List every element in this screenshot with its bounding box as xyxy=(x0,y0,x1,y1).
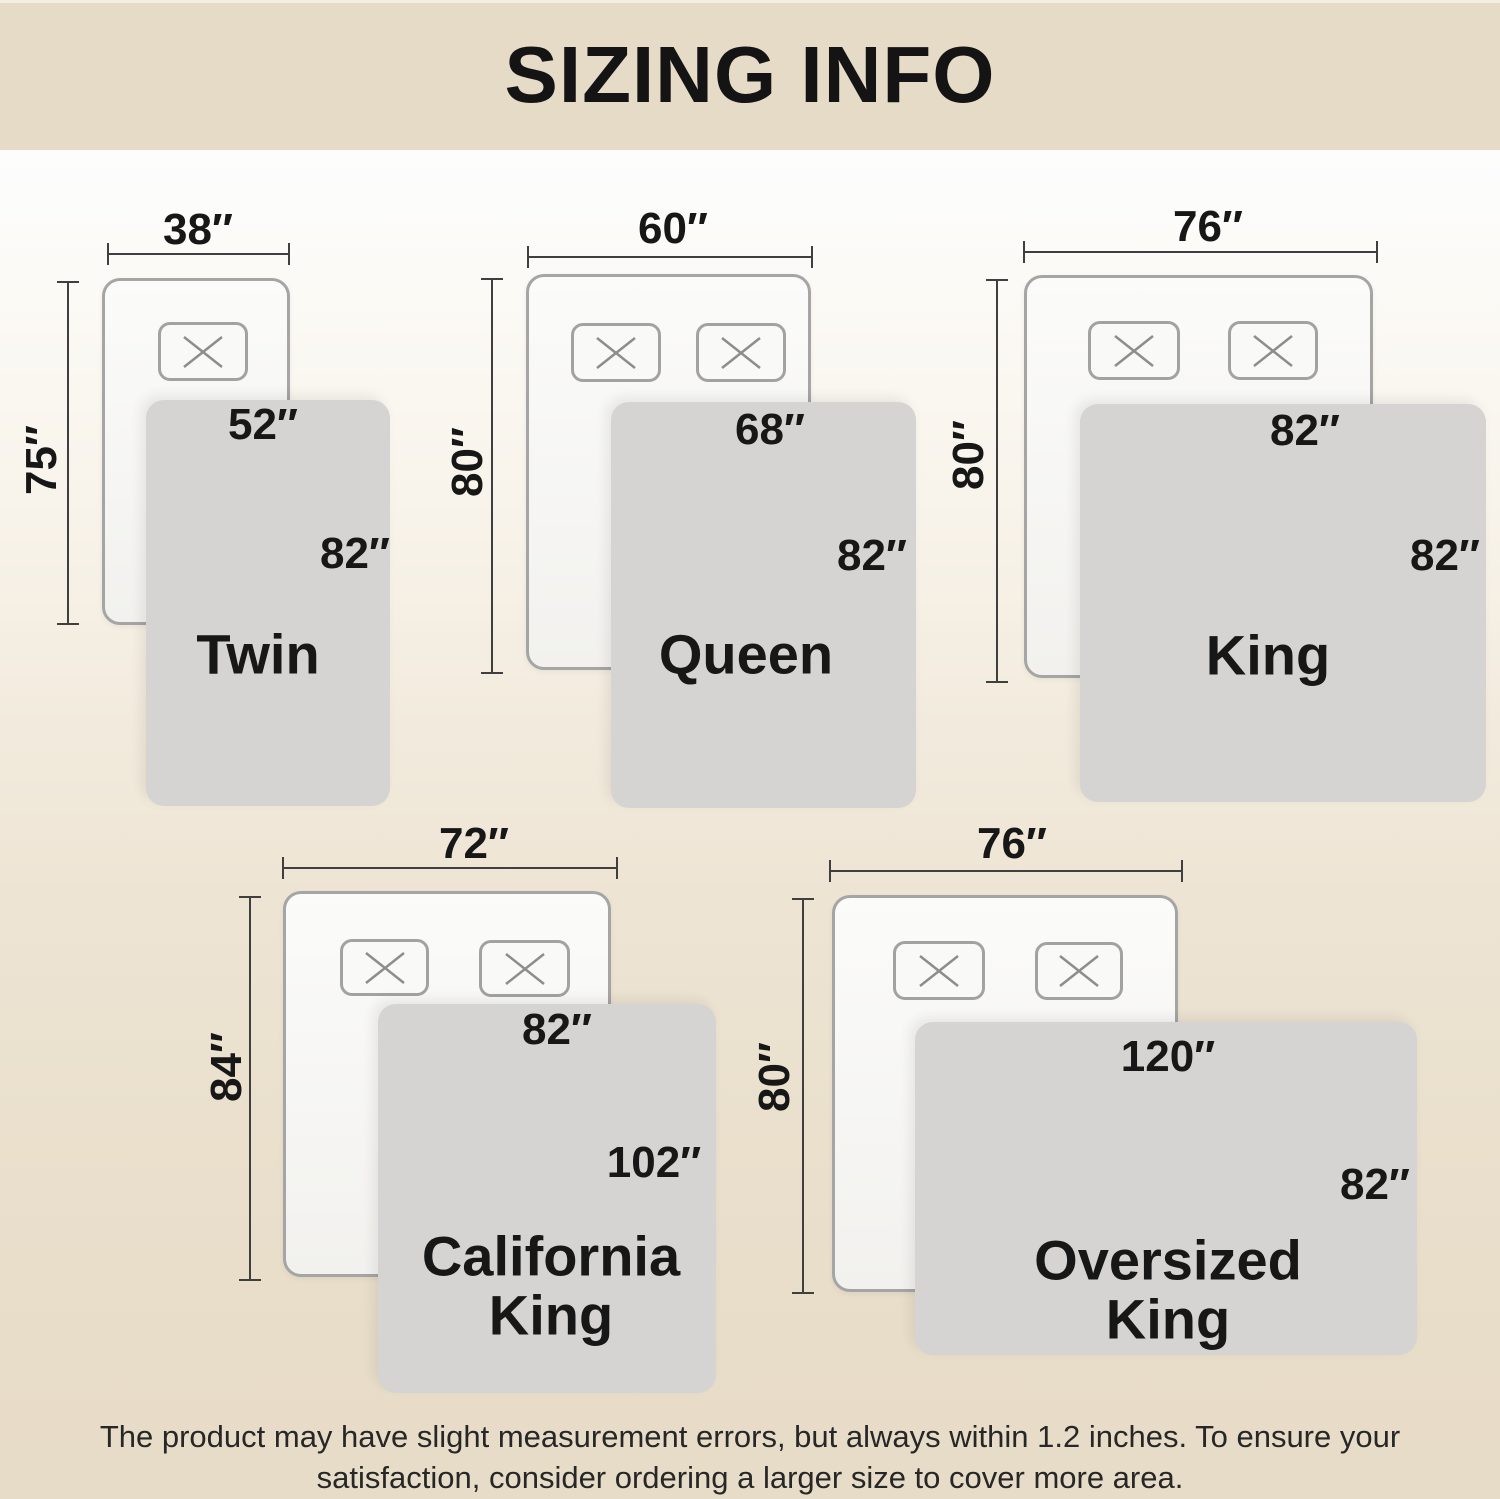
pillow-x-icon xyxy=(1054,952,1104,990)
twin-size-name: Twin xyxy=(196,624,319,683)
california-king-length-dimension-line xyxy=(239,896,261,1281)
oversized-king-pillow-right xyxy=(1035,942,1123,1000)
king-pillow-left xyxy=(1088,321,1180,380)
queen-blanket: 68″ 82″ Queen xyxy=(611,402,916,808)
queen-length-dimension-line xyxy=(481,278,503,674)
twin-length-dimension-line xyxy=(57,281,79,625)
twin-blanket-width-label: 52″ xyxy=(228,400,298,450)
california-king-blanket: 82″ 102″ California King xyxy=(378,1004,716,1393)
queen-mattress xyxy=(526,274,811,670)
king-width-dimension-line xyxy=(1023,241,1378,263)
pillow-x-icon xyxy=(914,952,964,990)
queen-blanket-length-label: 82″ xyxy=(837,531,907,581)
pillow-x-icon xyxy=(500,950,550,988)
queen-mattress-width-label: 60″ xyxy=(638,204,708,254)
california-king-mattress-length-label: 84″ xyxy=(202,1032,252,1102)
king-size-name: King xyxy=(1206,625,1330,684)
size-group-queen: 60″ 80″ 68″ 82″ Queen xyxy=(0,0,1500,1499)
page-title: SIZING INFO xyxy=(505,29,996,121)
sizing-info-graphic: SIZING INFO 38″ 75″ 52″ 82″ Twin 60″ 80″ xyxy=(0,0,1500,1499)
oversized-king-pillow-left xyxy=(893,941,985,1000)
oversized-king-width-dimension-line xyxy=(829,860,1183,882)
size-group-california-king: 72″ 84″ 82″ 102″ California King xyxy=(0,0,1500,1499)
king-blanket-length-label: 82″ xyxy=(1410,531,1480,581)
california-king-width-dimension-line xyxy=(282,857,618,879)
pillow-x-icon xyxy=(178,333,228,371)
oversized-king-blanket-length-label: 82″ xyxy=(1340,1160,1410,1210)
oversized-king-blanket-width-label: 120″ xyxy=(1121,1032,1216,1082)
california-king-pillow-left xyxy=(340,939,429,996)
disclaimer-line-2: satisfaction, consider ordering a larger… xyxy=(0,1457,1500,1498)
king-pillow-right xyxy=(1228,321,1318,380)
pillow-x-icon xyxy=(1248,332,1298,370)
queen-pillow-right xyxy=(696,323,786,382)
california-king-blanket-length-label: 102″ xyxy=(607,1138,702,1188)
twin-blanket-length-label: 82″ xyxy=(320,529,390,579)
king-mattress xyxy=(1024,275,1373,678)
oversized-king-length-dimension-line xyxy=(792,898,814,1294)
queen-width-dimension-line xyxy=(527,246,813,268)
pillow-x-icon xyxy=(716,334,766,372)
california-king-size-name: California King xyxy=(386,1227,716,1346)
disclaimer-line-1: The product may have slight measurement … xyxy=(0,1416,1500,1457)
queen-mattress-length-label: 80″ xyxy=(443,427,493,497)
queen-blanket-width-label: 68″ xyxy=(735,405,805,455)
size-group-twin: 38″ 75″ 52″ 82″ Twin xyxy=(0,0,1500,1499)
king-mattress-length-label: 80″ xyxy=(944,420,994,490)
queen-size-name: Queen xyxy=(659,624,833,683)
oversized-king-mattress xyxy=(832,895,1178,1292)
king-mattress-width-label: 76″ xyxy=(1173,202,1243,252)
california-king-blanket-width-label: 82″ xyxy=(522,1005,592,1055)
twin-pillow xyxy=(158,322,248,381)
pillow-x-icon xyxy=(360,949,410,987)
pillow-x-icon xyxy=(591,334,641,372)
oversized-king-mattress-width-label: 76″ xyxy=(977,819,1047,869)
oversized-king-blanket: 120″ 82″ Oversized King xyxy=(915,1022,1417,1355)
disclaimer-text: The product may have slight measurement … xyxy=(0,1416,1500,1498)
header-banner: SIZING INFO xyxy=(0,0,1500,150)
twin-mattress-width-label: 38″ xyxy=(163,205,233,255)
pillow-x-icon xyxy=(1109,332,1159,370)
size-group-king: 76″ 80″ 82″ 82″ King xyxy=(0,0,1500,1499)
size-group-oversized-king: 76″ 80″ 120″ 82″ Oversized King xyxy=(0,0,1500,1499)
twin-blanket: 52″ 82″ Twin xyxy=(146,400,390,806)
king-blanket-width-label: 82″ xyxy=(1270,406,1340,456)
queen-pillow-left xyxy=(571,323,661,382)
california-king-mattress xyxy=(283,891,611,1277)
oversized-king-size-name: Oversized King xyxy=(983,1231,1353,1350)
twin-mattress-length-label: 75″ xyxy=(17,425,67,495)
california-king-mattress-width-label: 72″ xyxy=(439,819,509,869)
oversized-king-mattress-length-label: 80″ xyxy=(750,1042,800,1112)
california-king-pillow-right xyxy=(479,940,570,997)
king-blanket: 82″ 82″ King xyxy=(1080,404,1486,802)
twin-width-dimension-line xyxy=(107,243,290,265)
king-length-dimension-line xyxy=(986,279,1008,683)
twin-mattress xyxy=(102,278,290,625)
